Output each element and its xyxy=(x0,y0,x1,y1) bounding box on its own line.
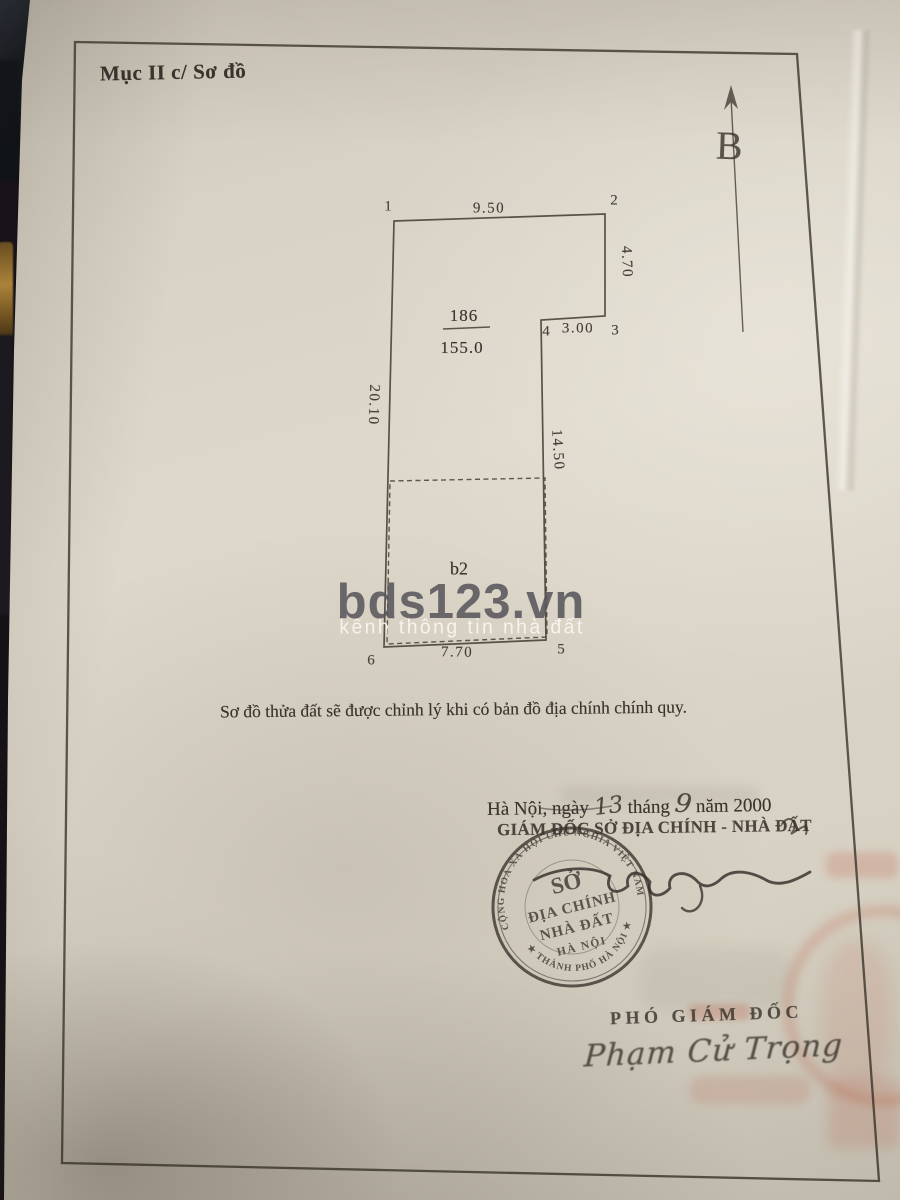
date-month-word: tháng xyxy=(628,796,671,818)
handwritten-month: 9 xyxy=(673,788,693,820)
watermark-tagline: kênh thông tin nhà đất xyxy=(339,617,584,640)
director-signature-flourish xyxy=(682,886,702,911)
vertex-label-5: 5 xyxy=(557,642,565,659)
vertex-label-3: 3 xyxy=(611,323,619,340)
dimension-left: 20.10 xyxy=(364,384,382,426)
dimension-bottom: 7.70 xyxy=(441,644,474,662)
section-title: Mục II c/ Sơ đồ xyxy=(100,58,247,86)
vertex-label-6: 6 xyxy=(367,653,375,670)
vertex-label-4: 4 xyxy=(542,324,550,341)
north-label: B xyxy=(715,122,743,170)
dimension-right-lower: 14.50 xyxy=(547,429,567,471)
photographed-document: CỘNG HOÀ XÃ HỘI CHỦ NGHĨA VIỆT NAM ★ THÀ… xyxy=(0,0,900,1200)
dimension-top: 9.50 xyxy=(473,200,505,217)
handwritten-day: 13 xyxy=(592,792,624,821)
parcel-fraction-line xyxy=(443,327,490,329)
date-year-text: năm 2000 xyxy=(696,795,772,817)
vertex-label-1: 1 xyxy=(384,199,392,216)
parcel-number: 186 xyxy=(450,306,479,326)
dimension-step: 3.00 xyxy=(562,321,594,338)
dimension-right-upper: 4.70 xyxy=(617,246,635,279)
vertex-label-2: 2 xyxy=(610,193,618,210)
parcel-area: 155.0 xyxy=(440,338,483,358)
date-place-prefix: Hà Nội, ngày xyxy=(487,798,589,820)
